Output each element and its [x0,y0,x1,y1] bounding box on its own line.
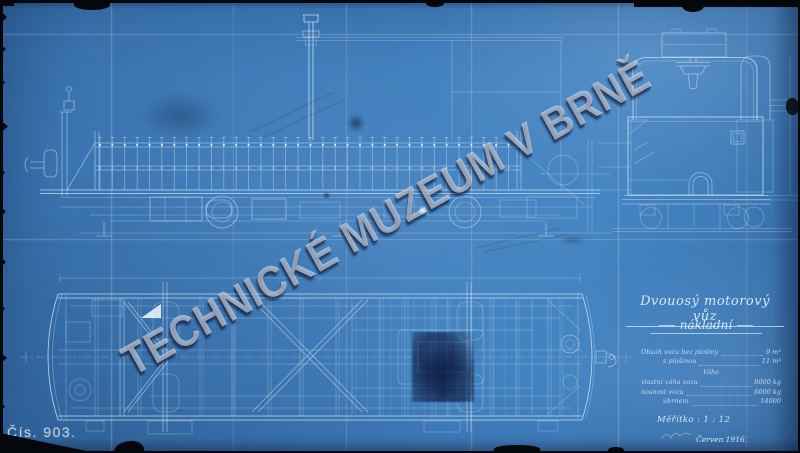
dash-rule [737,325,753,326]
scan-edge-mark [74,0,110,10]
blueprint-scan: TECHNICKÉ MUZEUM V BRNĚ Dvouosý motorový… [0,0,800,453]
scan-edge-mark [494,445,540,453]
spec-label: s plošinou [663,357,696,366]
date-label: Červen 1916. [696,435,747,444]
spec-label: úhrnem [663,397,689,406]
spec-row: úhrnem 14000 [641,397,781,406]
spec-value: 9 m³ [766,348,781,357]
dotted-leader [721,355,763,356]
spec-row: Obsah vozu bez plošiny 9 m³ [641,348,781,357]
spec-row: nosnost vozu 6000 kg [641,388,781,397]
spec-row: s plošinou 11 m³ [641,357,781,366]
spec-label: Obsah vozu bez plošiny [641,348,718,357]
scale-label: Měřítko : 1 : 12 [657,415,730,425]
signature-mark [662,433,691,439]
ink-spot [322,192,331,199]
spec-label: nosnost vozu [641,388,684,397]
end-profile-partial [733,56,798,227]
ink-spot [346,114,366,132]
fold-line [0,238,800,241]
spec-value: 8000 kg [754,378,781,387]
spec-value: 6000 kg [754,388,781,397]
scan-edge-mark [682,0,704,12]
weight-heading: Váha [641,368,781,377]
scan-edge-mark [426,0,444,7]
white-speck [418,206,427,215]
fold-line [232,0,235,453]
ink-stain [412,332,474,402]
dash-rule [659,325,675,326]
dotted-leader [699,365,759,366]
scan-edge-mark [608,447,624,453]
drawing-subtitle: nákladní [650,318,762,334]
dotted-leader [701,386,752,387]
spec-row: vlastní váha vozu 8000 kg [641,378,781,387]
scan-edge-mark [0,0,14,6]
spec-table: Obsah vozu bez plošiny 9 m³ s plošinou 1… [641,348,781,407]
fold-line [110,0,113,453]
spec-value: 14000 [760,397,781,406]
dotted-leader [687,395,752,396]
dotted-leader [692,405,758,406]
spec-label: vlastní váha vozu [641,378,698,387]
smudge-stain [138,92,222,140]
fold-line [0,33,800,36]
spec-value: 11 m³ [762,357,781,366]
scan-edge-mark [634,0,800,7]
subtitle-text: nákladní [680,318,732,332]
ink-spot [560,236,586,244]
scan-edge-left [0,0,3,453]
